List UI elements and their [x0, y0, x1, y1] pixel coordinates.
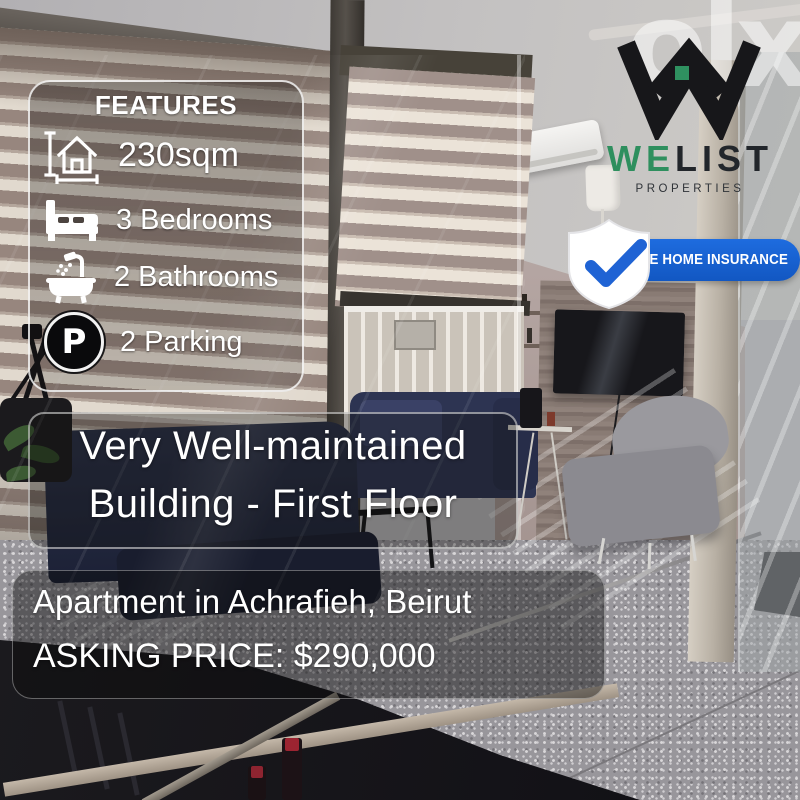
feature-label: 2 Parking: [120, 326, 243, 359]
feature-row-area: 230sqm: [44, 126, 239, 184]
welist-logo-icon: [612, 30, 762, 140]
table-decor: [547, 412, 555, 426]
welist-list: LIST: [675, 138, 773, 179]
welist-logo-text: WELIST: [600, 141, 780, 177]
gray-chaise: [561, 444, 721, 547]
zebra-blinds-middle: [335, 67, 535, 318]
outdoor-ac-unit: [394, 320, 436, 350]
listing-image: FEATURES 230sqm: [0, 0, 800, 800]
price-overlay: Apartment in Achrafieh, Beirut ASKING PR…: [12, 570, 605, 699]
feature-label: 230sqm: [118, 136, 239, 175]
insurance-shield-icon: [562, 215, 656, 311]
features-panel: FEATURES 230sqm: [28, 80, 304, 392]
parking-symbol: P: [62, 322, 87, 362]
feature-row-parking: P 2 Parking: [44, 312, 243, 372]
table-lamp: [520, 388, 542, 428]
feature-label: 2 Bathrooms: [114, 261, 278, 294]
shelf-bottle: [527, 328, 532, 343]
asking-price: ASKING PRICE: $290,000: [33, 637, 436, 676]
headline-line2: Building - First Floor: [30, 482, 516, 527]
headline-overlay: Very Well-maintained Building - First Fl…: [28, 412, 518, 549]
bed-icon: [44, 198, 100, 242]
area-icon: [44, 126, 102, 184]
welist-we: WE: [607, 138, 675, 179]
parking-icon: P: [44, 312, 104, 372]
feature-label: 3 Bedrooms: [116, 204, 272, 237]
headline-line1: Very Well-maintained: [30, 424, 516, 469]
wine-bottle-cap: [251, 766, 263, 778]
wine-bottle-cap: [285, 738, 299, 751]
features-title: FEATURES: [30, 90, 302, 121]
bath-icon: [44, 250, 98, 304]
feature-row-bathrooms: 2 Bathrooms: [44, 250, 278, 304]
welist-properties-label: PROPERTIES: [600, 183, 780, 195]
feature-row-bedrooms: 3 Bedrooms: [44, 198, 272, 242]
listing-location: Apartment in Achrafieh, Beirut: [33, 583, 471, 621]
